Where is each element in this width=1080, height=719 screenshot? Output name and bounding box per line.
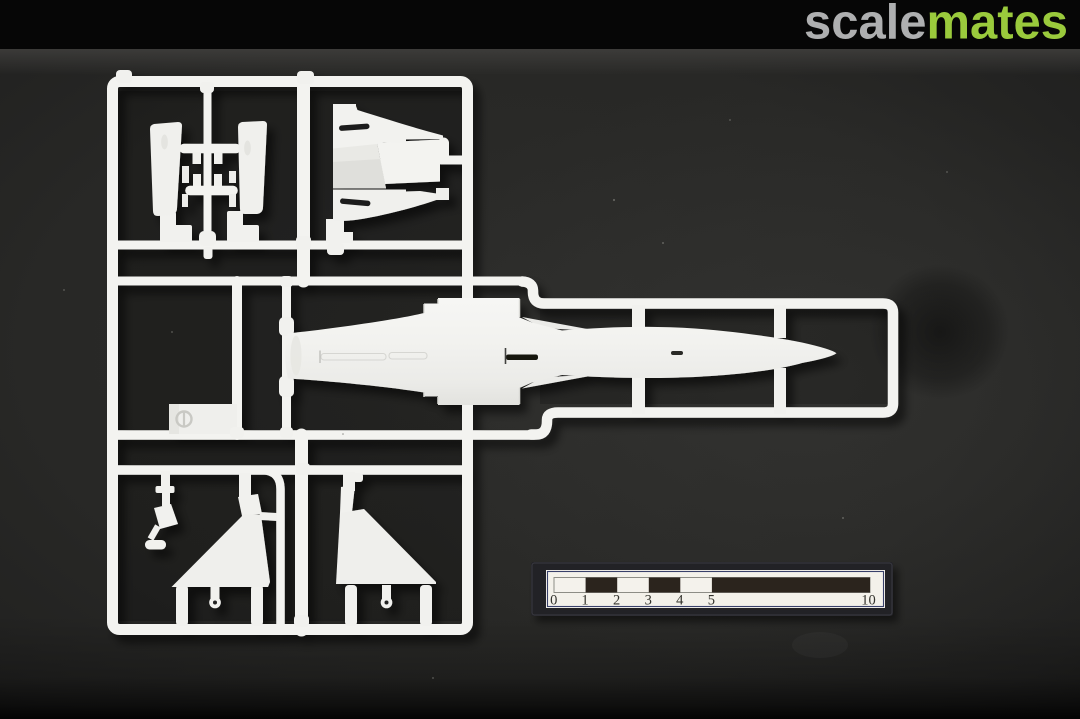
svg-text:scalemates: scalemates	[804, 0, 1068, 50]
svg-text:1: 1	[581, 593, 588, 609]
svg-text:10: 10	[861, 593, 876, 609]
svg-text:5: 5	[708, 593, 715, 609]
svg-text:3: 3	[645, 593, 652, 609]
svg-text:4: 4	[676, 593, 684, 609]
svg-text:2: 2	[613, 593, 620, 609]
svg-text:0: 0	[550, 593, 557, 609]
